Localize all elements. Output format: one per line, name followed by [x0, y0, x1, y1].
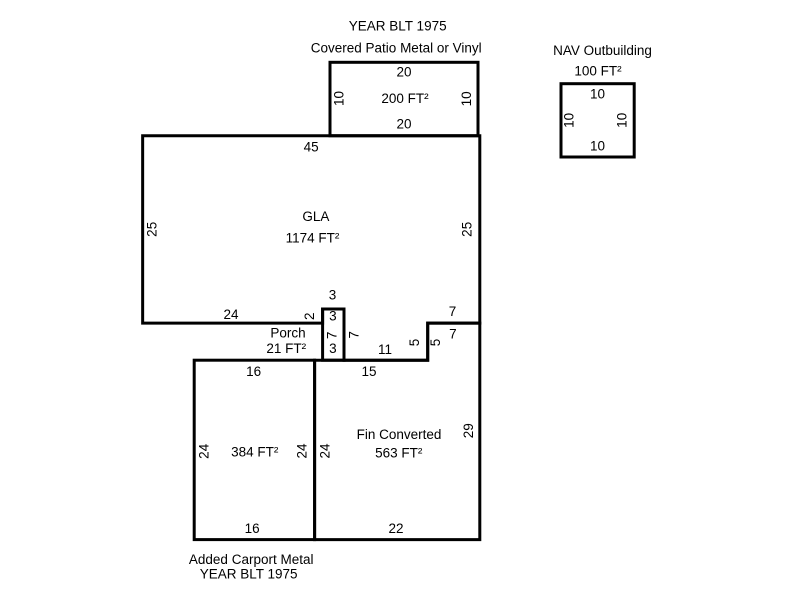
svg-text:5: 5: [407, 339, 422, 347]
svg-text:24: 24: [197, 443, 212, 459]
svg-text:10: 10: [331, 91, 346, 106]
svg-text:Porch: Porch: [270, 326, 305, 341]
svg-text:10: 10: [590, 86, 605, 101]
svg-text:25: 25: [145, 222, 160, 237]
svg-text:563 FT²: 563 FT²: [375, 445, 423, 460]
svg-text:16: 16: [246, 364, 261, 379]
svg-text:Covered Patio Metal or Vinyl: Covered Patio Metal or Vinyl: [311, 41, 482, 56]
svg-text:2: 2: [302, 312, 317, 320]
svg-text:11: 11: [378, 342, 392, 357]
svg-text:10: 10: [561, 113, 576, 128]
svg-text:100 FT²: 100 FT²: [574, 64, 622, 79]
svg-text:7: 7: [449, 327, 457, 342]
svg-text:22: 22: [388, 521, 403, 536]
svg-text:29: 29: [461, 423, 476, 438]
svg-text:Added Carport Metal: Added Carport Metal: [189, 552, 314, 567]
svg-text:10: 10: [590, 138, 605, 153]
svg-text:YEAR BLT 1975: YEAR BLT 1975: [200, 567, 298, 582]
svg-text:45: 45: [304, 140, 319, 155]
svg-text:20: 20: [396, 64, 411, 79]
svg-text:5: 5: [428, 339, 443, 347]
svg-text:384 FT²: 384 FT²: [231, 444, 279, 459]
svg-text:24: 24: [294, 443, 309, 459]
svg-text:25: 25: [460, 222, 475, 237]
svg-text:20: 20: [396, 117, 411, 132]
svg-text:7: 7: [324, 332, 339, 340]
svg-text:GLA: GLA: [302, 209, 329, 224]
svg-text:16: 16: [245, 521, 260, 536]
svg-text:3: 3: [329, 288, 337, 303]
svg-text:7: 7: [347, 331, 362, 339]
svg-text:200 FT²: 200 FT²: [381, 91, 429, 106]
svg-text:NAV Outbuilding: NAV Outbuilding: [553, 43, 652, 58]
svg-text:15: 15: [361, 364, 376, 379]
svg-text:3: 3: [329, 309, 337, 324]
svg-text:21 FT²: 21 FT²: [266, 341, 306, 356]
svg-text:10: 10: [459, 91, 474, 106]
svg-text:24: 24: [223, 307, 239, 322]
svg-text:24: 24: [318, 443, 333, 459]
svg-text:Fin Converted: Fin Converted: [357, 427, 442, 442]
svg-text:1174 FT²: 1174 FT²: [286, 231, 340, 246]
svg-text:YEAR BLT 1975: YEAR BLT 1975: [349, 18, 447, 33]
svg-text:10: 10: [615, 113, 630, 128]
svg-text:3: 3: [329, 341, 337, 356]
svg-text:7: 7: [449, 304, 457, 319]
